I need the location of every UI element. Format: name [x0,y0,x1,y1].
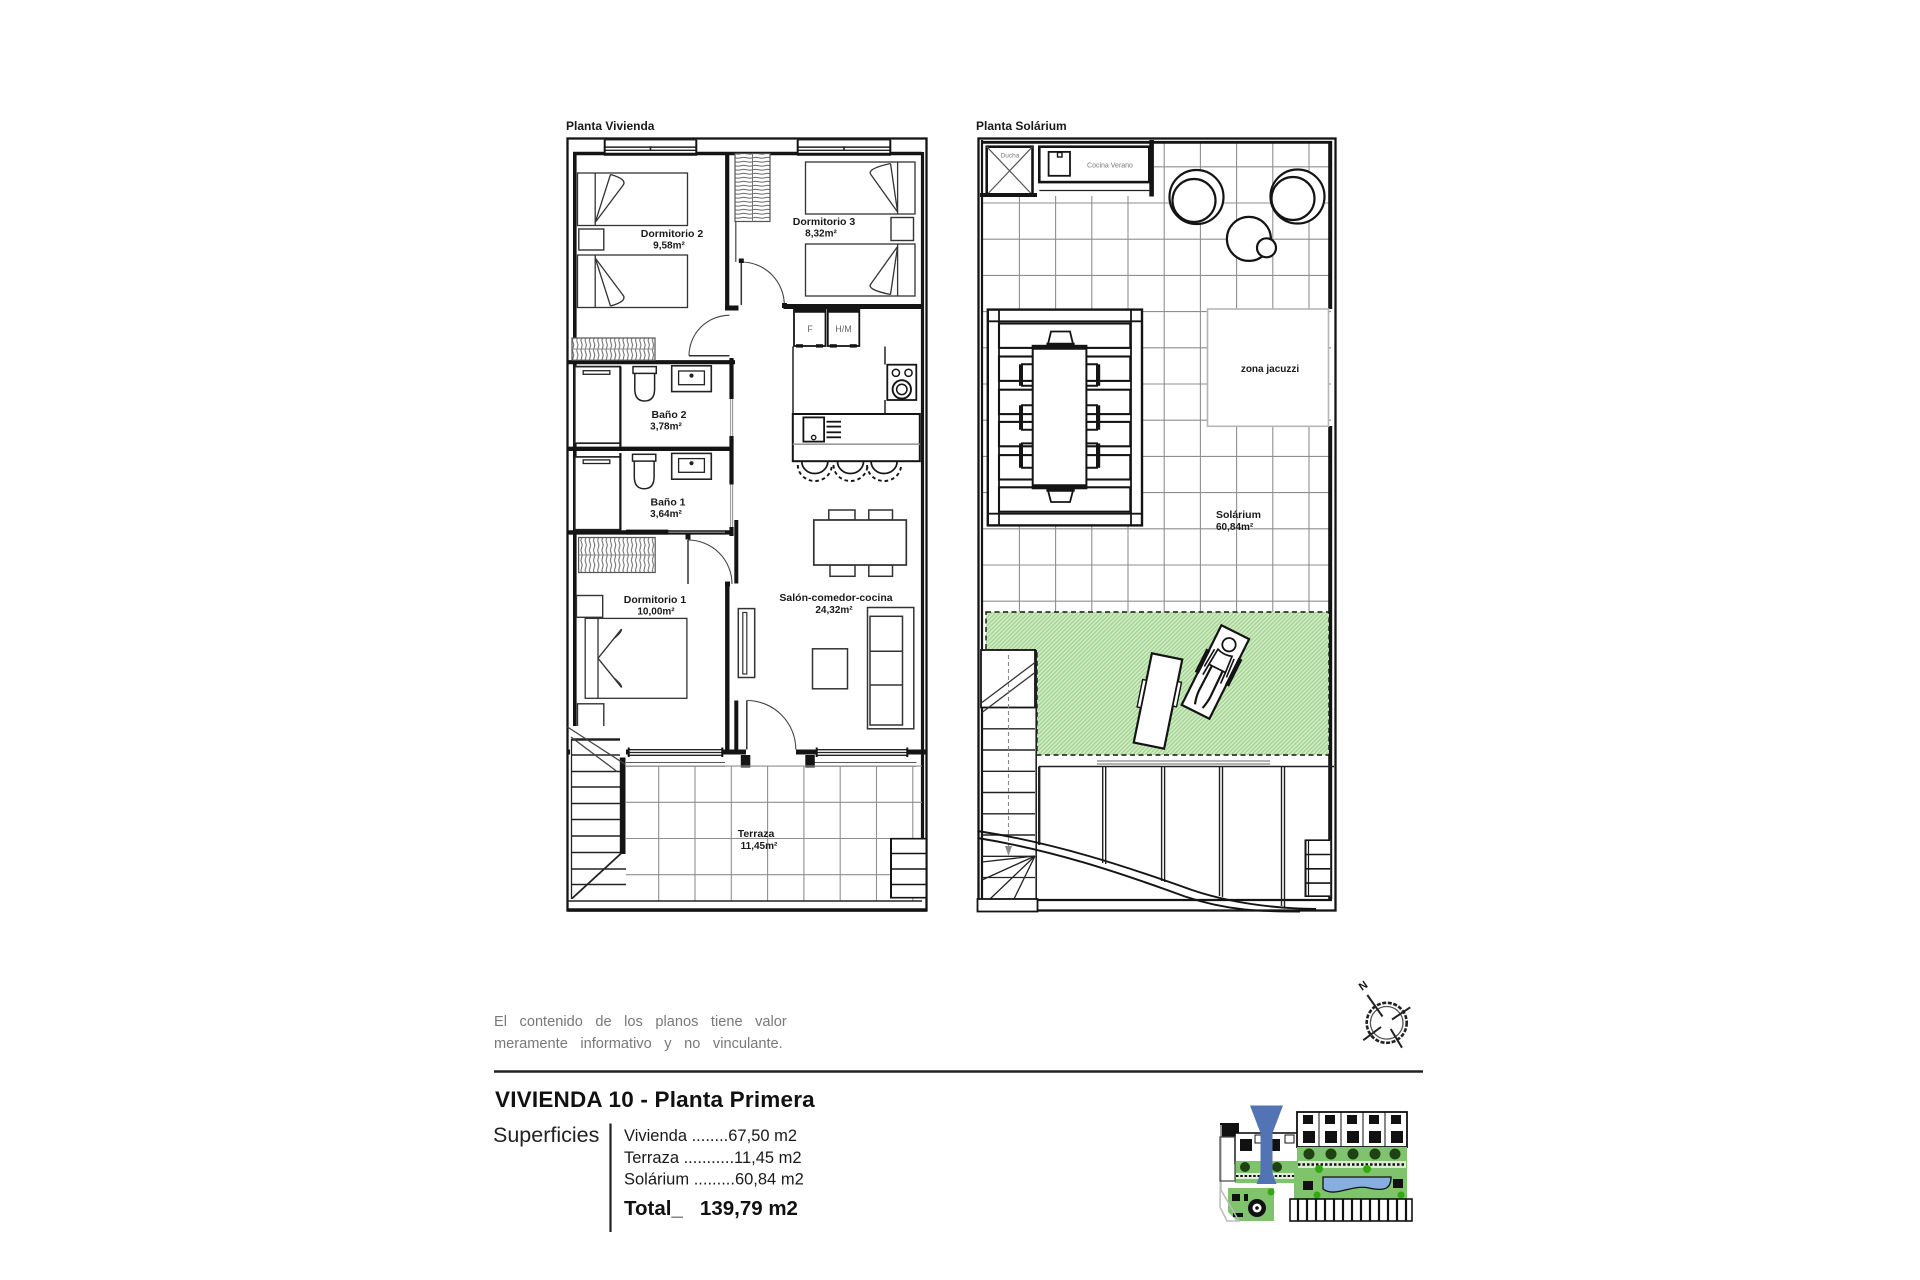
svg-text:3,64m²: 3,64m² [650,509,682,520]
svg-text:Solárium .........60,84 m2: Solárium .........60,84 m2 [624,1171,804,1189]
svg-text:Baño 1: Baño 1 [650,497,685,509]
svg-text:Solárium: Solárium [1216,509,1261,521]
svg-text:zona jacuzzi: zona jacuzzi [1241,364,1300,375]
svg-text:24,32m²: 24,32m² [815,605,853,616]
svg-text:10,00m²: 10,00m² [637,607,675,618]
svg-text:Ducha: Ducha [1001,153,1020,160]
svg-text:Total_ 139,79 m2: Total_ 139,79 m2 [624,1197,798,1220]
svg-text:60,84m²: 60,84m² [1216,522,1254,533]
svg-text:VIVIENDA 10 - Planta Primera: VIVIENDA 10 - Planta Primera [495,1087,815,1112]
svg-text:8,32m²: 8,32m² [805,229,837,240]
svg-text:Dormitorio 2: Dormitorio 2 [641,228,704,240]
svg-text:Planta Solárium: Planta Solárium [976,119,1067,133]
svg-text:Salón-comedor-cocina: Salón-comedor-cocina [779,592,892,604]
svg-text:Vivienda ........67,50 m2: Vivienda ........67,50 m2 [624,1127,797,1145]
svg-text:meramente informativo y no vin: meramente informativo y no vinculante. [494,1036,783,1052]
svg-text:H/M: H/M [835,324,852,334]
svg-text:Cocina Verano: Cocina Verano [1087,163,1133,170]
svg-text:Terraza: Terraza [738,828,775,840]
svg-text:Dormitorio 3: Dormitorio 3 [793,216,856,228]
svg-text:Superficies: Superficies [493,1123,599,1147]
svg-text:3,78m²: 3,78m² [650,422,682,433]
svg-text:Planta Vivienda: Planta Vivienda [566,119,655,133]
svg-text:11,45m²: 11,45m² [741,841,778,852]
svg-text:N: N [1357,979,1370,993]
svg-text:Dormitorio 1: Dormitorio 1 [624,594,687,606]
svg-text:Terraza ...........11,45 m2: Terraza ...........11,45 m2 [624,1149,802,1167]
svg-text:Baño 2: Baño 2 [651,409,686,421]
svg-text:F: F [807,324,813,334]
svg-text:El contenido de los planos tie: El contenido de los planos tiene valor [494,1014,787,1030]
svg-text:9,58m²: 9,58m² [653,241,685,252]
